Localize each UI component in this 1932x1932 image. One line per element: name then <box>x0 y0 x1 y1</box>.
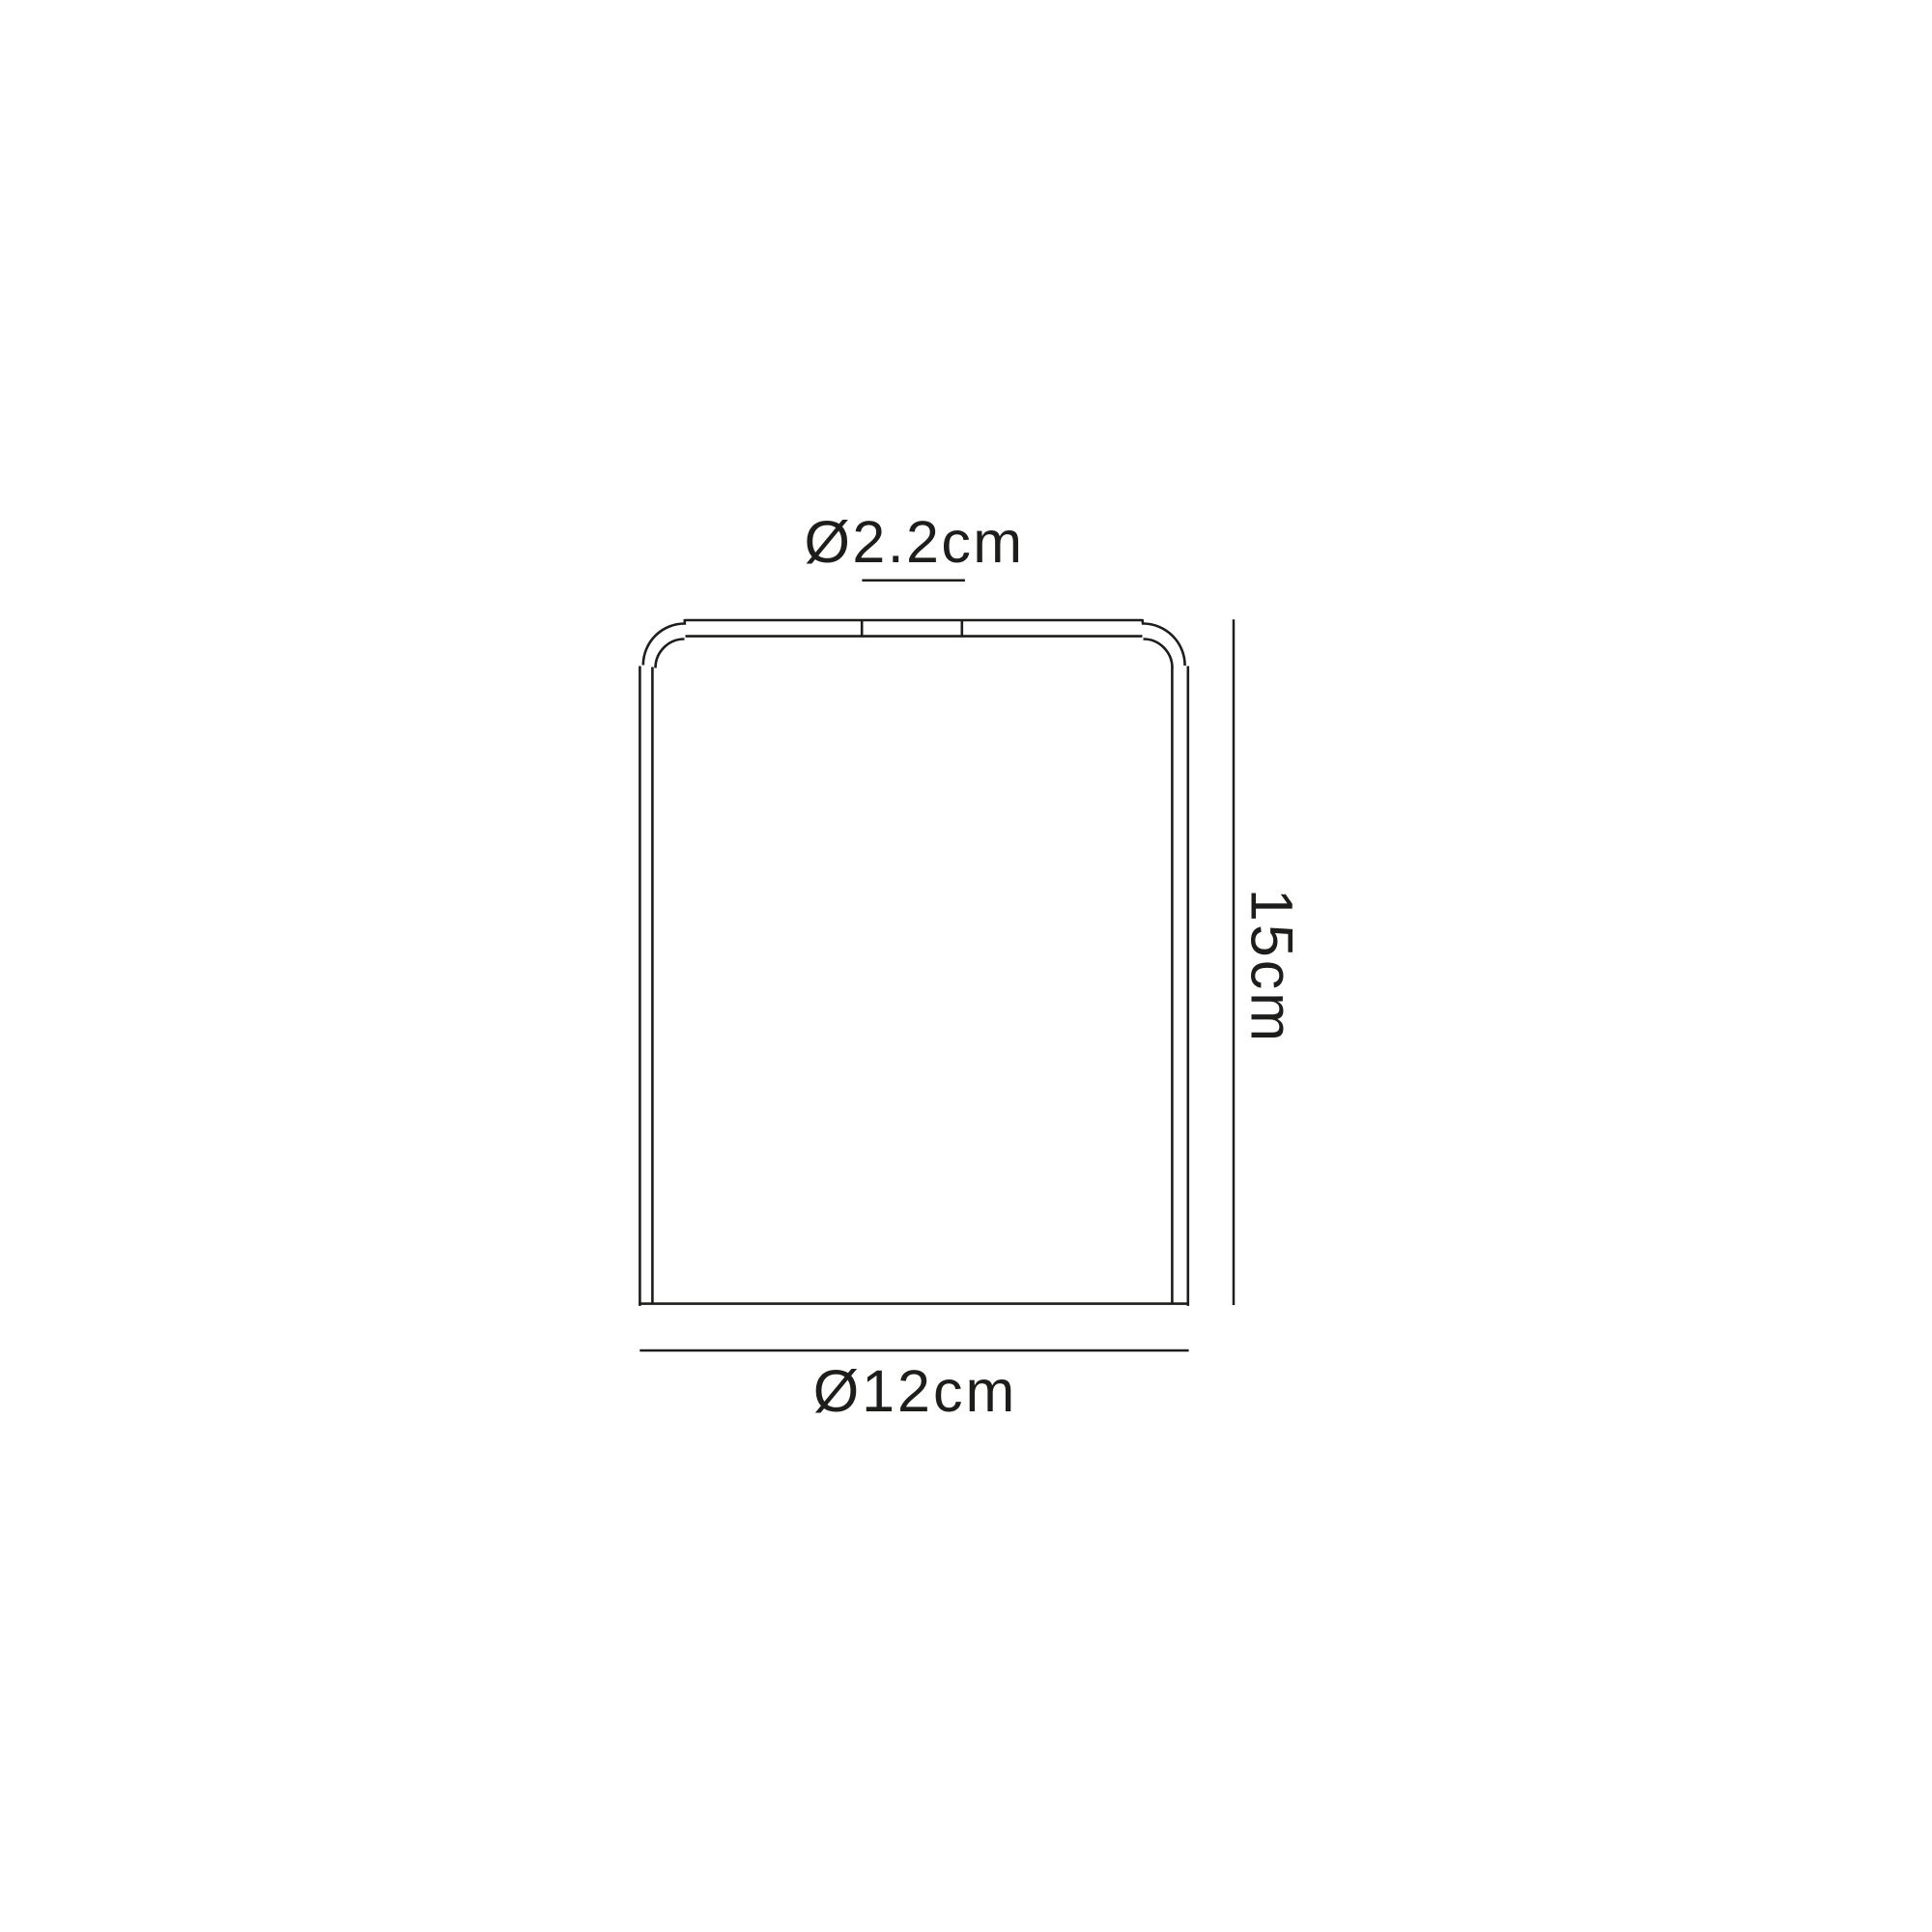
svg-text:Ø2.2cm: Ø2.2cm <box>805 509 1025 575</box>
svg-text:Ø12cm: Ø12cm <box>813 1358 1018 1424</box>
svg-text:15cm: 15cm <box>1239 889 1305 1044</box>
